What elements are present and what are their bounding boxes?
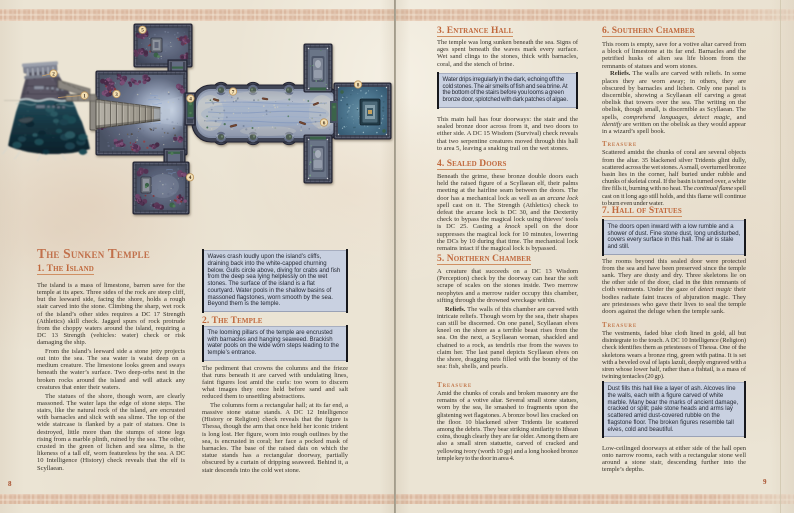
svg-text:7: 7 xyxy=(232,89,235,95)
svg-text:4: 4 xyxy=(189,175,192,181)
svg-text:6: 6 xyxy=(323,120,326,126)
svg-text:2: 2 xyxy=(52,71,55,77)
svg-text:5: 5 xyxy=(141,28,144,34)
svg-text:1: 1 xyxy=(83,93,86,99)
svg-text:8: 8 xyxy=(357,82,360,88)
svg-text:3: 3 xyxy=(115,92,118,98)
svg-text:4: 4 xyxy=(189,96,192,102)
